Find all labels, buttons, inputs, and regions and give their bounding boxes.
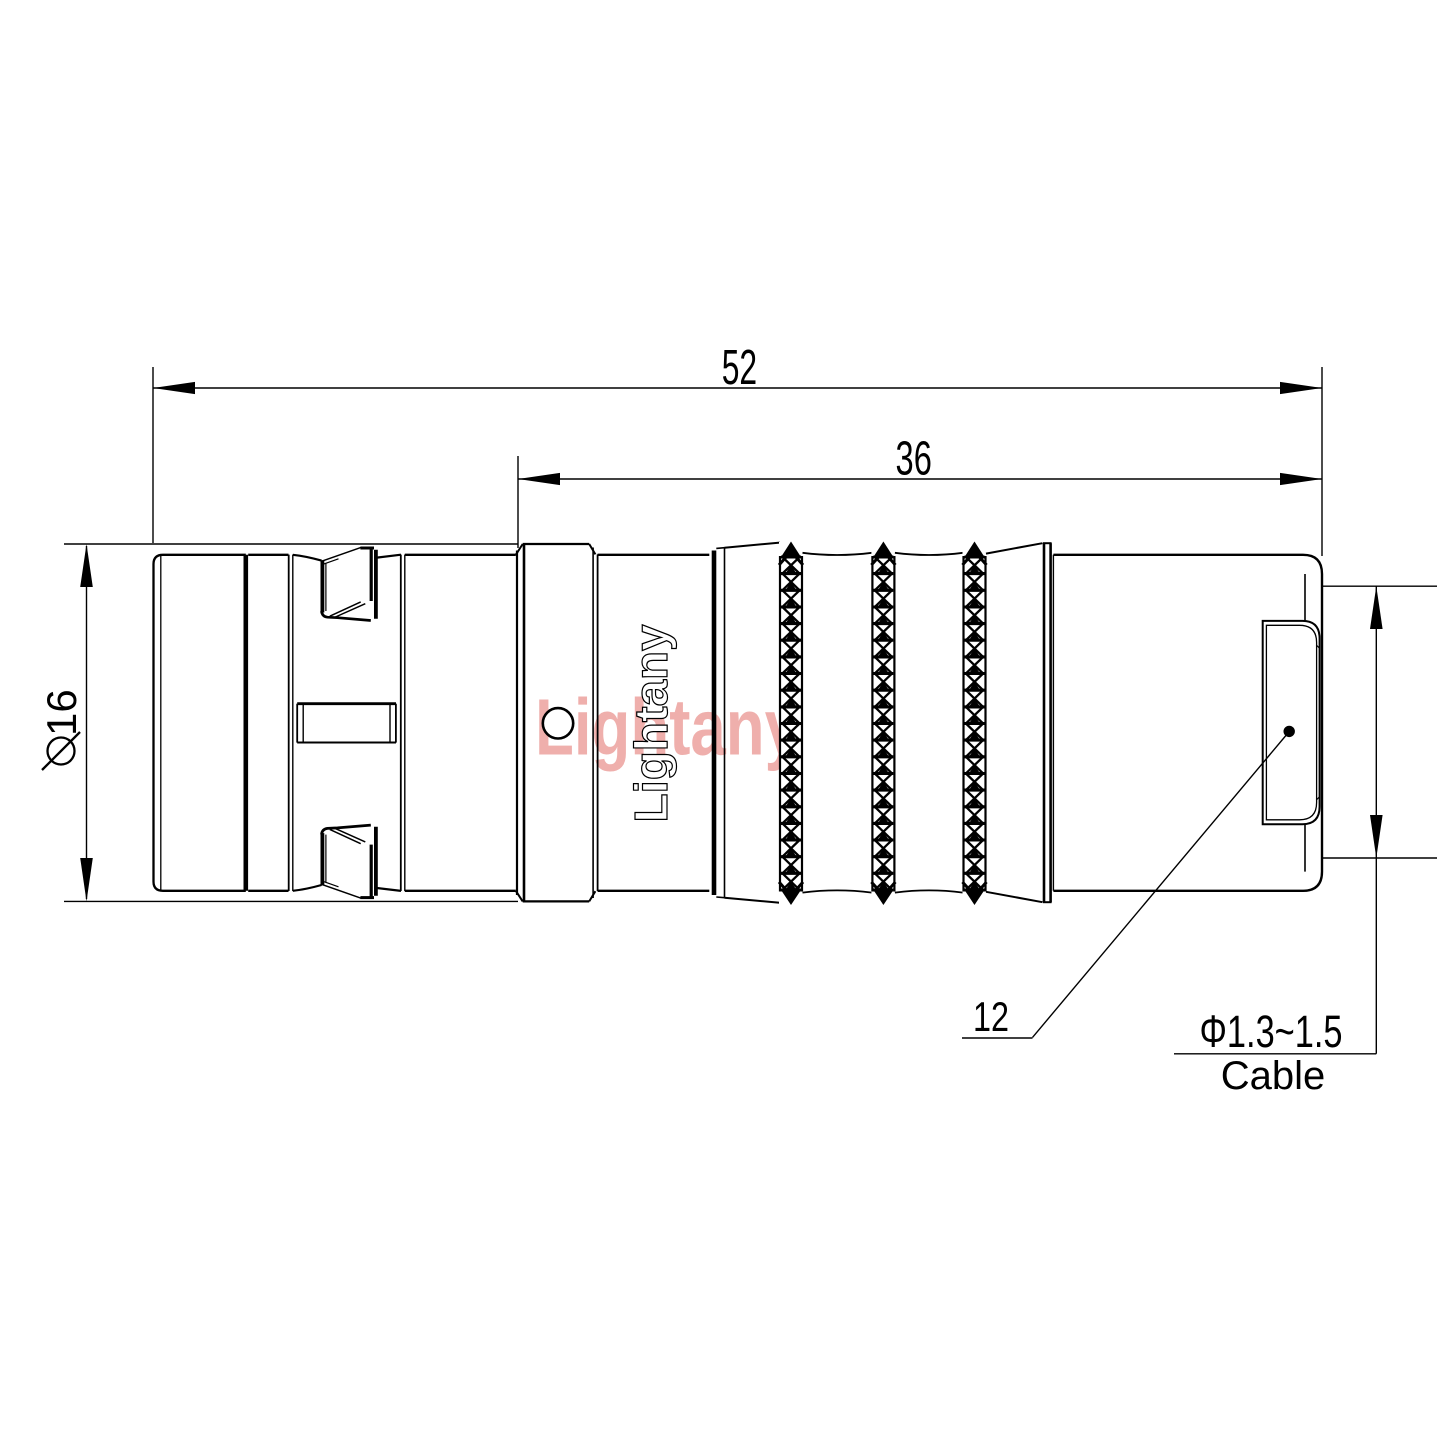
svg-text:36: 36 [896,432,932,485]
svg-text:16: 16 [38,689,85,736]
svg-text:Φ1.3~1.5: Φ1.3~1.5 [1200,1006,1343,1057]
svg-text:Cable: Cable [1221,1054,1326,1098]
svg-text:52: 52 [722,341,757,395]
svg-text:Lightany: Lightany [625,624,677,822]
svg-text:12: 12 [973,993,1009,1040]
